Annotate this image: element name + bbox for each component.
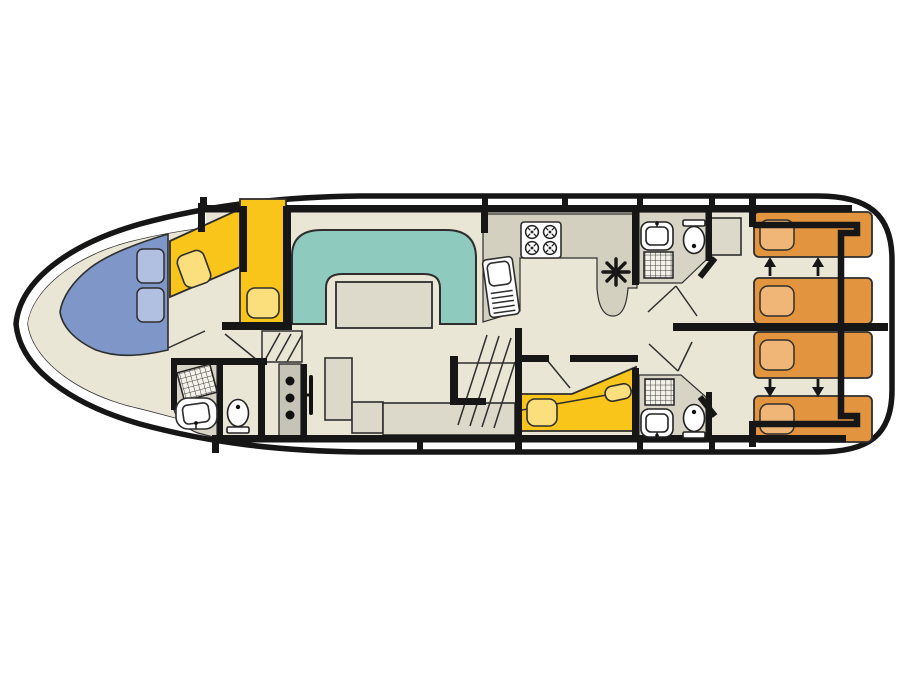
boat-floor-plan [0, 0, 900, 675]
wall-segment [450, 398, 486, 405]
vent-symbol [603, 259, 629, 285]
stove-burner [526, 226, 539, 239]
instrument-dot [286, 377, 295, 386]
wall-segment [515, 328, 522, 441]
cabinet [325, 358, 352, 420]
wall-segment [417, 441, 423, 453]
wardrobe [711, 218, 741, 255]
shower-tray [645, 379, 674, 405]
wall-segment [562, 197, 568, 211]
wall-segment [709, 197, 715, 211]
stove-burner [526, 242, 539, 255]
toilet [683, 405, 705, 439]
stove-burner [544, 226, 557, 239]
wall-segment [286, 205, 852, 213]
wall-segment [632, 368, 639, 442]
wall-segment [706, 205, 712, 261]
wall-segment [258, 358, 265, 438]
wall-segment [222, 322, 292, 330]
toilet [683, 220, 705, 254]
seat-cushion [137, 288, 164, 322]
wall-segment [450, 356, 458, 405]
bed-pillow [760, 286, 794, 316]
wall-segment [301, 364, 307, 436]
wall-segment [637, 197, 643, 211]
wall-segment [673, 323, 888, 331]
wall-segment [515, 441, 522, 453]
washbasin [641, 409, 673, 438]
bench-long [383, 403, 515, 435]
bed-pillow [527, 399, 557, 426]
stove-burner [544, 242, 557, 255]
wall-segment [283, 206, 291, 330]
wall-segment [212, 441, 219, 453]
wall-segment [570, 355, 638, 362]
instrument-dot [286, 411, 295, 420]
wall-segment [200, 197, 207, 211]
bed-pillow [760, 340, 794, 370]
berth-pillow [247, 288, 279, 318]
bed-pillow [760, 404, 794, 434]
bench-corner [352, 402, 383, 433]
wall-segment [709, 441, 715, 453]
toilet [227, 400, 249, 434]
wall-segment [240, 206, 247, 272]
wall-segment [515, 355, 549, 362]
wall-segment [482, 197, 488, 211]
wall-segment [171, 358, 177, 410]
washbasin [641, 221, 673, 250]
wall-segment [632, 205, 639, 285]
seat-cushion [137, 249, 164, 283]
instrument-dot [286, 394, 295, 403]
saloon-table [336, 282, 432, 328]
shower-tray [644, 252, 673, 278]
wall-segment [217, 363, 223, 438]
wall-segment [637, 441, 643, 453]
wall-segment [706, 392, 712, 442]
tap-dot [194, 421, 198, 425]
